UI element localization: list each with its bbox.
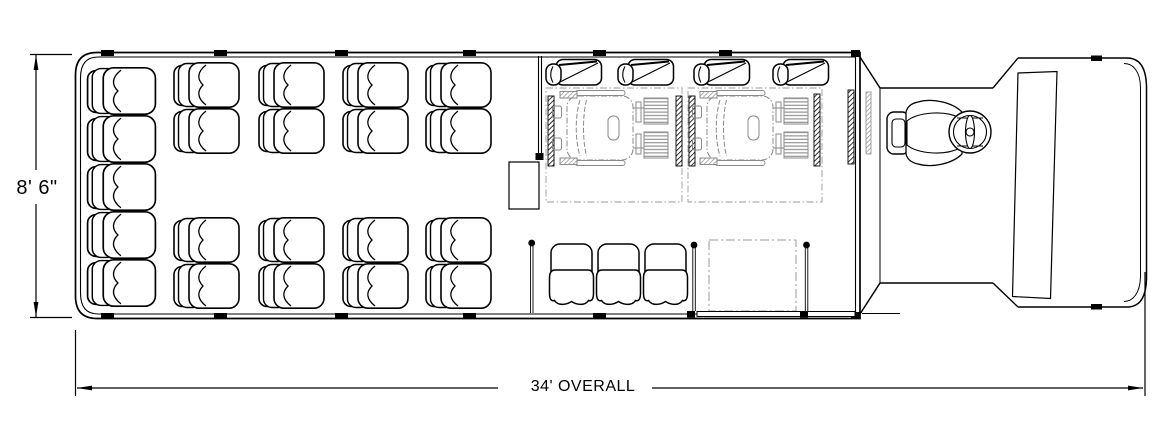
- lift-door-leaf: [697, 312, 855, 317]
- cab-outline: [860, 56, 1127, 315]
- seat: [597, 244, 641, 304]
- seat: [343, 218, 408, 262]
- flip-seats: [546, 60, 829, 86]
- flip-seat: [618, 60, 674, 86]
- height-dimension-label: 8' 6": [6, 177, 68, 200]
- seat: [174, 218, 239, 262]
- wheelchair-area: [546, 60, 854, 203]
- rear-bench: [88, 68, 156, 306]
- passenger-rows-bottom: [174, 218, 491, 308]
- steering-wheel: [949, 111, 991, 153]
- seat: [426, 63, 491, 107]
- equipment-box: [509, 162, 539, 209]
- passenger-rows-top: [174, 63, 491, 153]
- modesty-panel: [536, 56, 544, 160]
- seat: [259, 218, 324, 262]
- seat: [174, 63, 239, 107]
- length-dimension-label: 34' OVERALL: [500, 378, 666, 396]
- wheelchair-1: [553, 91, 669, 166]
- flip-seat: [546, 60, 602, 86]
- seat: [88, 260, 156, 306]
- seat: [88, 68, 156, 114]
- bus-floorplan: 8' 6" 34' OVERALL: [0, 0, 1170, 447]
- aft-bench: [550, 244, 688, 304]
- seat: [88, 116, 156, 162]
- seat: [644, 244, 688, 304]
- lift-door-area: [687, 240, 855, 318]
- seat: [174, 264, 239, 308]
- seat: [343, 63, 408, 107]
- seat: [88, 212, 156, 258]
- seat: [174, 109, 239, 153]
- front-bumper: [1124, 58, 1147, 307]
- flip-seat: [694, 60, 750, 86]
- seat: [88, 164, 156, 210]
- seat: [426, 264, 491, 308]
- seat: [426, 109, 491, 153]
- seat: [426, 218, 491, 262]
- seat: [259, 63, 324, 107]
- seat: [259, 109, 324, 153]
- bulkhead-track: [866, 92, 871, 154]
- seat: [343, 109, 408, 153]
- flip-seat: [773, 60, 829, 86]
- seat: [259, 264, 324, 308]
- lift-platform-outline: [709, 240, 796, 311]
- wheelchair-2: [693, 91, 809, 166]
- seat: [343, 264, 408, 308]
- seat: [550, 244, 594, 304]
- windshield: [1013, 72, 1058, 299]
